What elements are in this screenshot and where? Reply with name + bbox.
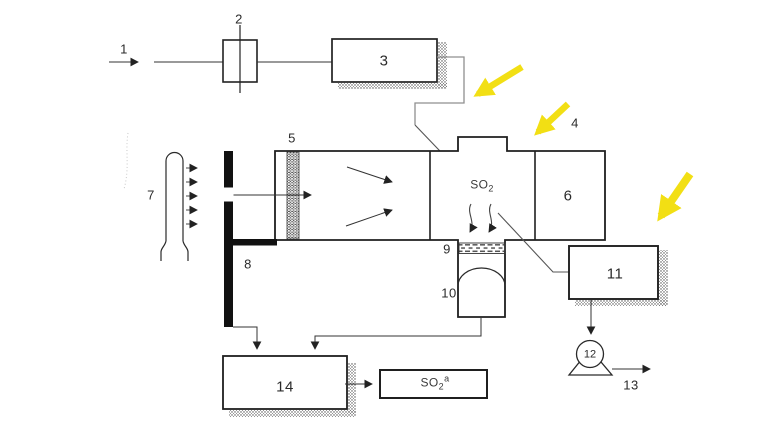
reaction-chamber-outline <box>275 137 605 317</box>
filter-strip-9 <box>459 243 505 254</box>
label-7: 7 <box>147 189 155 202</box>
faint-dotted-mark <box>124 133 128 189</box>
label-9: 9 <box>443 243 451 256</box>
label-11: 11 <box>607 267 624 282</box>
uv-lamp-7 <box>161 153 188 262</box>
label-13: 13 <box>623 379 638 392</box>
label-8: 8 <box>244 258 252 271</box>
label-14: 14 <box>276 380 294 395</box>
hatching-14-right <box>348 363 356 414</box>
label-1: 1 <box>120 43 128 56</box>
label-10: 10 <box>441 287 456 300</box>
label-6: 6 <box>564 189 573 204</box>
highlight-arrow-1 <box>478 67 522 94</box>
panel-8-slot <box>224 188 234 202</box>
hatching-14-bottom <box>229 410 356 417</box>
hatching-3-right <box>438 42 447 88</box>
so2-readout-label: SO2a <box>421 374 450 391</box>
label-5: 5 <box>288 132 296 145</box>
panel-8-foot <box>233 239 277 246</box>
dark-panel-8 <box>224 151 233 327</box>
label-3: 3 <box>380 54 389 69</box>
line-8-to-14 <box>233 327 257 349</box>
hatching-11-right <box>659 250 668 306</box>
highlight-arrow-2 <box>538 104 568 132</box>
so2-gas-label: SO2 <box>470 178 494 193</box>
label-2: 2 <box>235 13 243 26</box>
label-4: 4 <box>571 117 579 130</box>
hatching-11-bottom <box>575 300 667 306</box>
line-10-to-14 <box>315 317 481 349</box>
diagram-canvas: 1 2 3 4 5 6 7 8 9 10 11 12 13 14 SO2 SO2… <box>0 0 780 431</box>
label-12: 12 <box>584 350 596 361</box>
highlight-arrow-3 <box>661 174 690 216</box>
hatching-3-bottom <box>338 83 447 89</box>
schematic-linework <box>0 0 780 431</box>
